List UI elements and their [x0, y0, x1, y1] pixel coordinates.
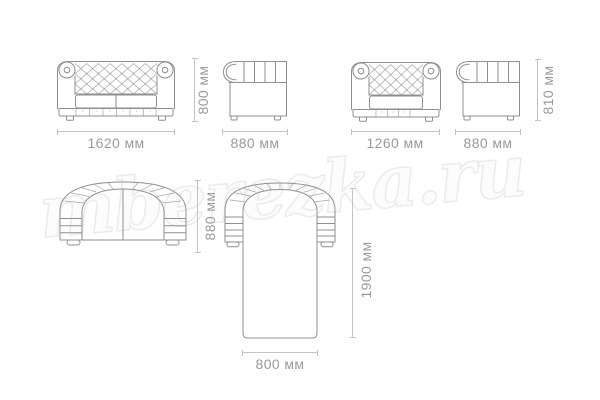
dimension-line-sofa-depth — [222, 131, 288, 132]
right-armrest — [317, 210, 335, 242]
dimension-line-bed-length — [352, 188, 353, 338]
seat-cushions — [76, 95, 157, 108]
arm-roll — [457, 62, 470, 83]
arm-roll — [224, 62, 237, 83]
legs — [231, 116, 281, 120]
pull-out-bed — [243, 242, 317, 338]
base-skirt — [59, 109, 173, 117]
dimension-label-bed-length: 1900 мм — [358, 234, 374, 306]
curved-backrest — [225, 183, 335, 242]
furniture-dimensions-diagram: mberezka.ru — [0, 0, 600, 400]
dimension-line-sofa-width — [57, 131, 175, 132]
dimension-line-bed-width — [242, 352, 318, 353]
legs — [464, 116, 514, 120]
dimension-label-sofa-height: 800 мм — [195, 58, 211, 122]
seat-cushion — [370, 96, 423, 109]
tufted-backrest — [362, 63, 430, 96]
side-body — [230, 83, 287, 117]
dimension-label-armchair-width: 1260 мм — [345, 135, 445, 151]
left-scroll-arm — [58, 62, 76, 109]
dimension-label-sofa-width: 1620 мм — [66, 135, 166, 151]
sofa-top-view-drawing — [56, 178, 190, 247]
dimension-label-bed-width: 800 мм — [230, 356, 330, 372]
dimension-label-sofa-depth: 880 мм — [205, 135, 305, 151]
arm-band — [462, 62, 520, 83]
sofa-side-view-drawing — [222, 60, 288, 122]
dimension-line-topview-depth — [197, 180, 198, 253]
legs — [67, 240, 179, 245]
dimension-line-armchair-depth — [455, 131, 521, 132]
armchair-front-view-drawing — [350, 58, 442, 122]
left-scroll-arm — [352, 63, 370, 110]
side-body — [463, 83, 520, 117]
right-scroll-arm — [157, 62, 175, 109]
arm-band — [229, 62, 287, 83]
sofa-unfolded-top-view-drawing — [222, 180, 338, 342]
left-armrest — [225, 210, 243, 242]
legs — [67, 116, 166, 120]
sofa-front-view-drawing — [56, 57, 176, 121]
right-scroll-arm — [423, 63, 441, 110]
dimension-line-armchair-width — [351, 131, 440, 132]
dimension-label-topview-depth: 880 мм — [202, 184, 218, 248]
dimension-label-armchair-height: 810 мм — [540, 58, 556, 122]
dimension-line-armchair-height — [537, 59, 538, 121]
base-skirt — [353, 110, 439, 118]
dimension-label-armchair-depth: 880 мм — [438, 135, 538, 151]
legs — [360, 117, 433, 121]
left-armrest — [60, 211, 82, 240]
armchair-side-view-drawing — [455, 60, 521, 122]
tufted-backrest — [68, 62, 164, 95]
right-armrest — [164, 211, 186, 240]
